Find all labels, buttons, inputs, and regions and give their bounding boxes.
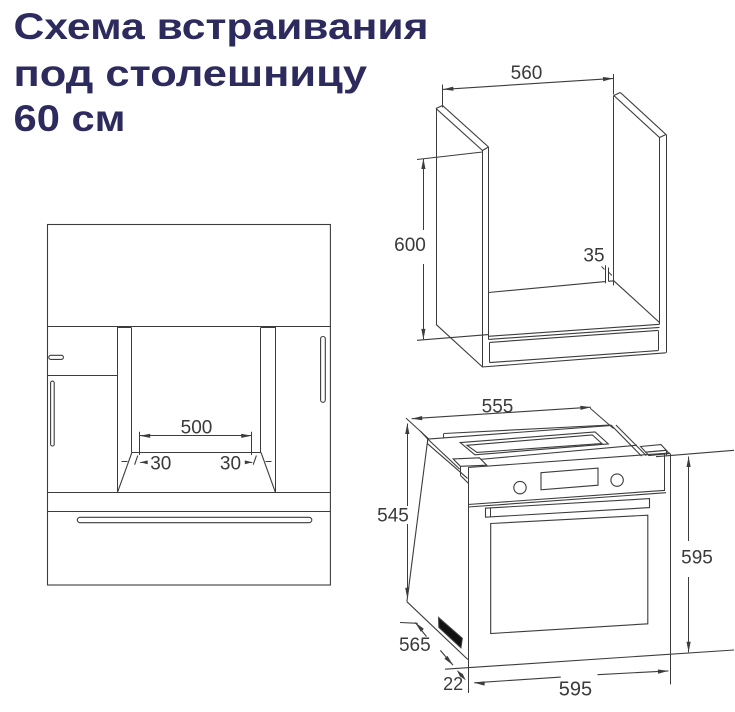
svg-text:565: 565 <box>399 635 431 656</box>
svg-text:500: 500 <box>181 418 213 439</box>
svg-text:595: 595 <box>681 548 713 569</box>
svg-text:60 см: 60 см <box>14 98 126 139</box>
svg-text:30: 30 <box>150 453 171 474</box>
svg-text:555: 555 <box>482 397 514 418</box>
svg-text:Схема встраивания: Схема встраивания <box>14 6 429 47</box>
svg-text:22: 22 <box>443 674 463 694</box>
svg-text:560: 560 <box>511 63 543 84</box>
svg-text:35: 35 <box>583 246 604 267</box>
svg-text:30: 30 <box>220 453 241 474</box>
svg-text:545: 545 <box>377 506 409 527</box>
svg-text:600: 600 <box>394 235 426 256</box>
svg-text:595: 595 <box>559 679 592 701</box>
svg-text:под столешницу: под столешницу <box>14 53 368 94</box>
